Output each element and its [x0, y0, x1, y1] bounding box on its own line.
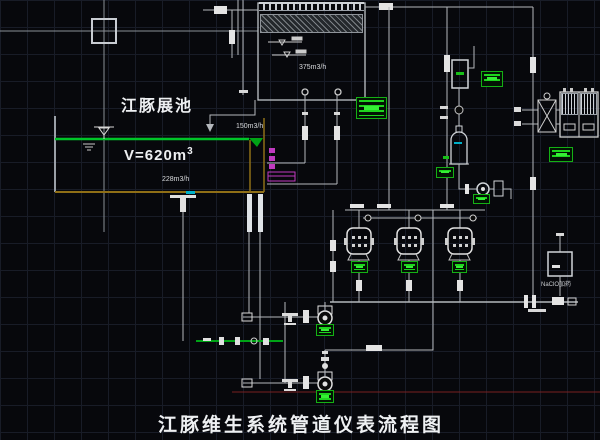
- valve-icon: [334, 126, 340, 140]
- flow-label-overflow: 150m3/h: [236, 123, 263, 130]
- equipment-tag: [452, 261, 467, 273]
- valve-icon: [303, 310, 309, 323]
- filter-outlet-pipes: [267, 95, 340, 184]
- naclo-label: NaClO加药: [541, 279, 571, 288]
- check-valve-icon: [322, 363, 328, 369]
- pool-name-label: 江豚展池: [121, 92, 193, 116]
- filter-unit: [344, 210, 374, 302]
- flow-label-bottom: 228m3/h: [162, 176, 189, 183]
- overflow-downcomer: [247, 194, 252, 232]
- valve-icon: [465, 184, 469, 194]
- equipment-tag: [473, 194, 490, 204]
- treatment-vessels: [440, 46, 511, 204]
- ground-mark-icon: [83, 144, 95, 150]
- valve-icon: [356, 280, 362, 291]
- column-grid-axis: [0, 0, 258, 232]
- pool-volume-value: V=620m: [124, 147, 187, 164]
- valve-icon: [219, 337, 224, 345]
- valve-icon: [366, 345, 382, 351]
- valve-icon: [330, 240, 336, 251]
- valve-icon: [302, 126, 308, 140]
- pool-volume-label: V=620m3: [124, 146, 194, 164]
- drawing-title: 江豚维生系统管道仪表流程图: [158, 410, 444, 437]
- filter-unit: [394, 210, 424, 302]
- pool-drain: [170, 191, 196, 341]
- level-gauge: [268, 148, 295, 181]
- equipment-tag: [316, 324, 334, 336]
- valve-icon: [406, 280, 412, 291]
- valve-icon: [457, 280, 463, 291]
- valve-icon: [530, 57, 536, 73]
- filter-feed-pipes: [203, 0, 258, 95]
- arrow-down-icon: [206, 124, 214, 132]
- filter-nozzle-band: [259, 2, 364, 11]
- filter-units: [344, 210, 475, 302]
- chiller-coil-hatch: [561, 93, 578, 115]
- strainer-icon: [282, 379, 298, 391]
- strainer-icon: [282, 313, 298, 325]
- pool-volume-exponent: 3: [187, 146, 194, 157]
- overflow-water-wedge: [249, 138, 263, 147]
- equipment-tag: [401, 261, 418, 273]
- equipment-tag: [481, 71, 503, 87]
- flow-label-filter: 375m3/h: [299, 64, 326, 71]
- equipment-tag: [436, 167, 454, 178]
- equipment-tag: [316, 390, 334, 403]
- circulation-pump-2: [242, 350, 332, 391]
- circulation-pump-1: [242, 302, 332, 325]
- equipment-tag: [351, 261, 368, 273]
- chiller-coil-hatch: [580, 93, 597, 115]
- valve-icon: [444, 55, 450, 72]
- valve-icon: [379, 3, 393, 10]
- sensor-icon: [455, 106, 463, 114]
- overflow-downcomer: [258, 194, 263, 232]
- valve-icon: [303, 376, 309, 389]
- filter-unit: [445, 210, 475, 302]
- valve-icon: [530, 177, 536, 190]
- cad-canvas: 江豚展池 V=620m3 228m3/h 150m3/h 375m3/h NaC…: [0, 0, 600, 440]
- filter-media-hatch: [260, 14, 363, 33]
- valve-icon: [263, 338, 269, 345]
- valve-icon: [235, 337, 240, 345]
- equipment-tag: [549, 147, 573, 162]
- equipment-tag: [356, 97, 387, 119]
- valve-icon: [330, 261, 336, 272]
- pool-return-line: [196, 337, 283, 345]
